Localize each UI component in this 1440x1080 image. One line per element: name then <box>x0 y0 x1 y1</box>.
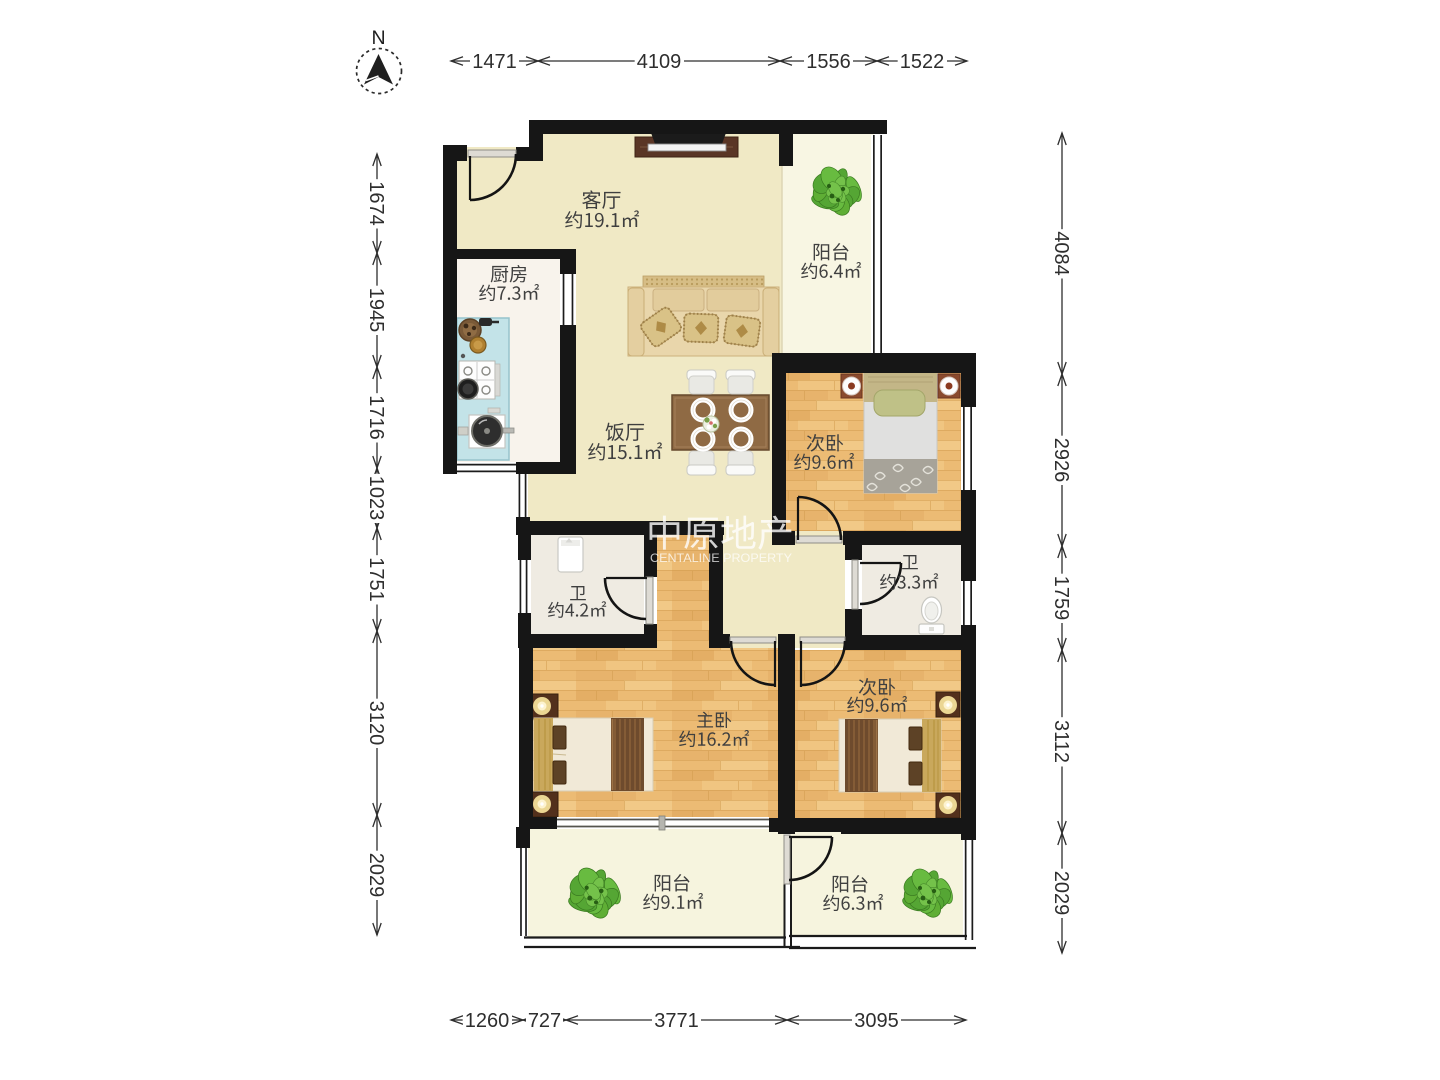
svg-text:N: N <box>371 27 385 49</box>
svg-text:1751: 1751 <box>365 557 387 602</box>
svg-text:4109: 4109 <box>637 51 682 73</box>
svg-text:1759: 1759 <box>1050 576 1072 621</box>
svg-text:2029: 2029 <box>1050 871 1072 916</box>
svg-text:1260: 1260 <box>465 1010 510 1032</box>
svg-text:2926: 2926 <box>1050 438 1072 483</box>
svg-text:1556: 1556 <box>806 51 851 73</box>
svg-text:3112: 3112 <box>1050 720 1072 763</box>
svg-text:1471: 1471 <box>472 51 517 73</box>
svg-text:727: 727 <box>528 1010 561 1032</box>
svg-text:1522: 1522 <box>900 51 945 73</box>
svg-text:1716: 1716 <box>365 395 387 440</box>
svg-text:3771: 3771 <box>654 1010 699 1032</box>
svg-text:2029: 2029 <box>365 853 387 898</box>
svg-text:4084: 4084 <box>1050 231 1072 276</box>
svg-text:1945: 1945 <box>365 288 387 333</box>
svg-text:3120: 3120 <box>365 701 387 746</box>
svg-text:3095: 3095 <box>854 1010 899 1032</box>
svg-text:1023: 1023 <box>365 476 387 521</box>
svg-text:CENTALINE PROPERTY: CENTALINE PROPERTY <box>650 551 792 565</box>
svg-text:1674: 1674 <box>365 181 387 226</box>
